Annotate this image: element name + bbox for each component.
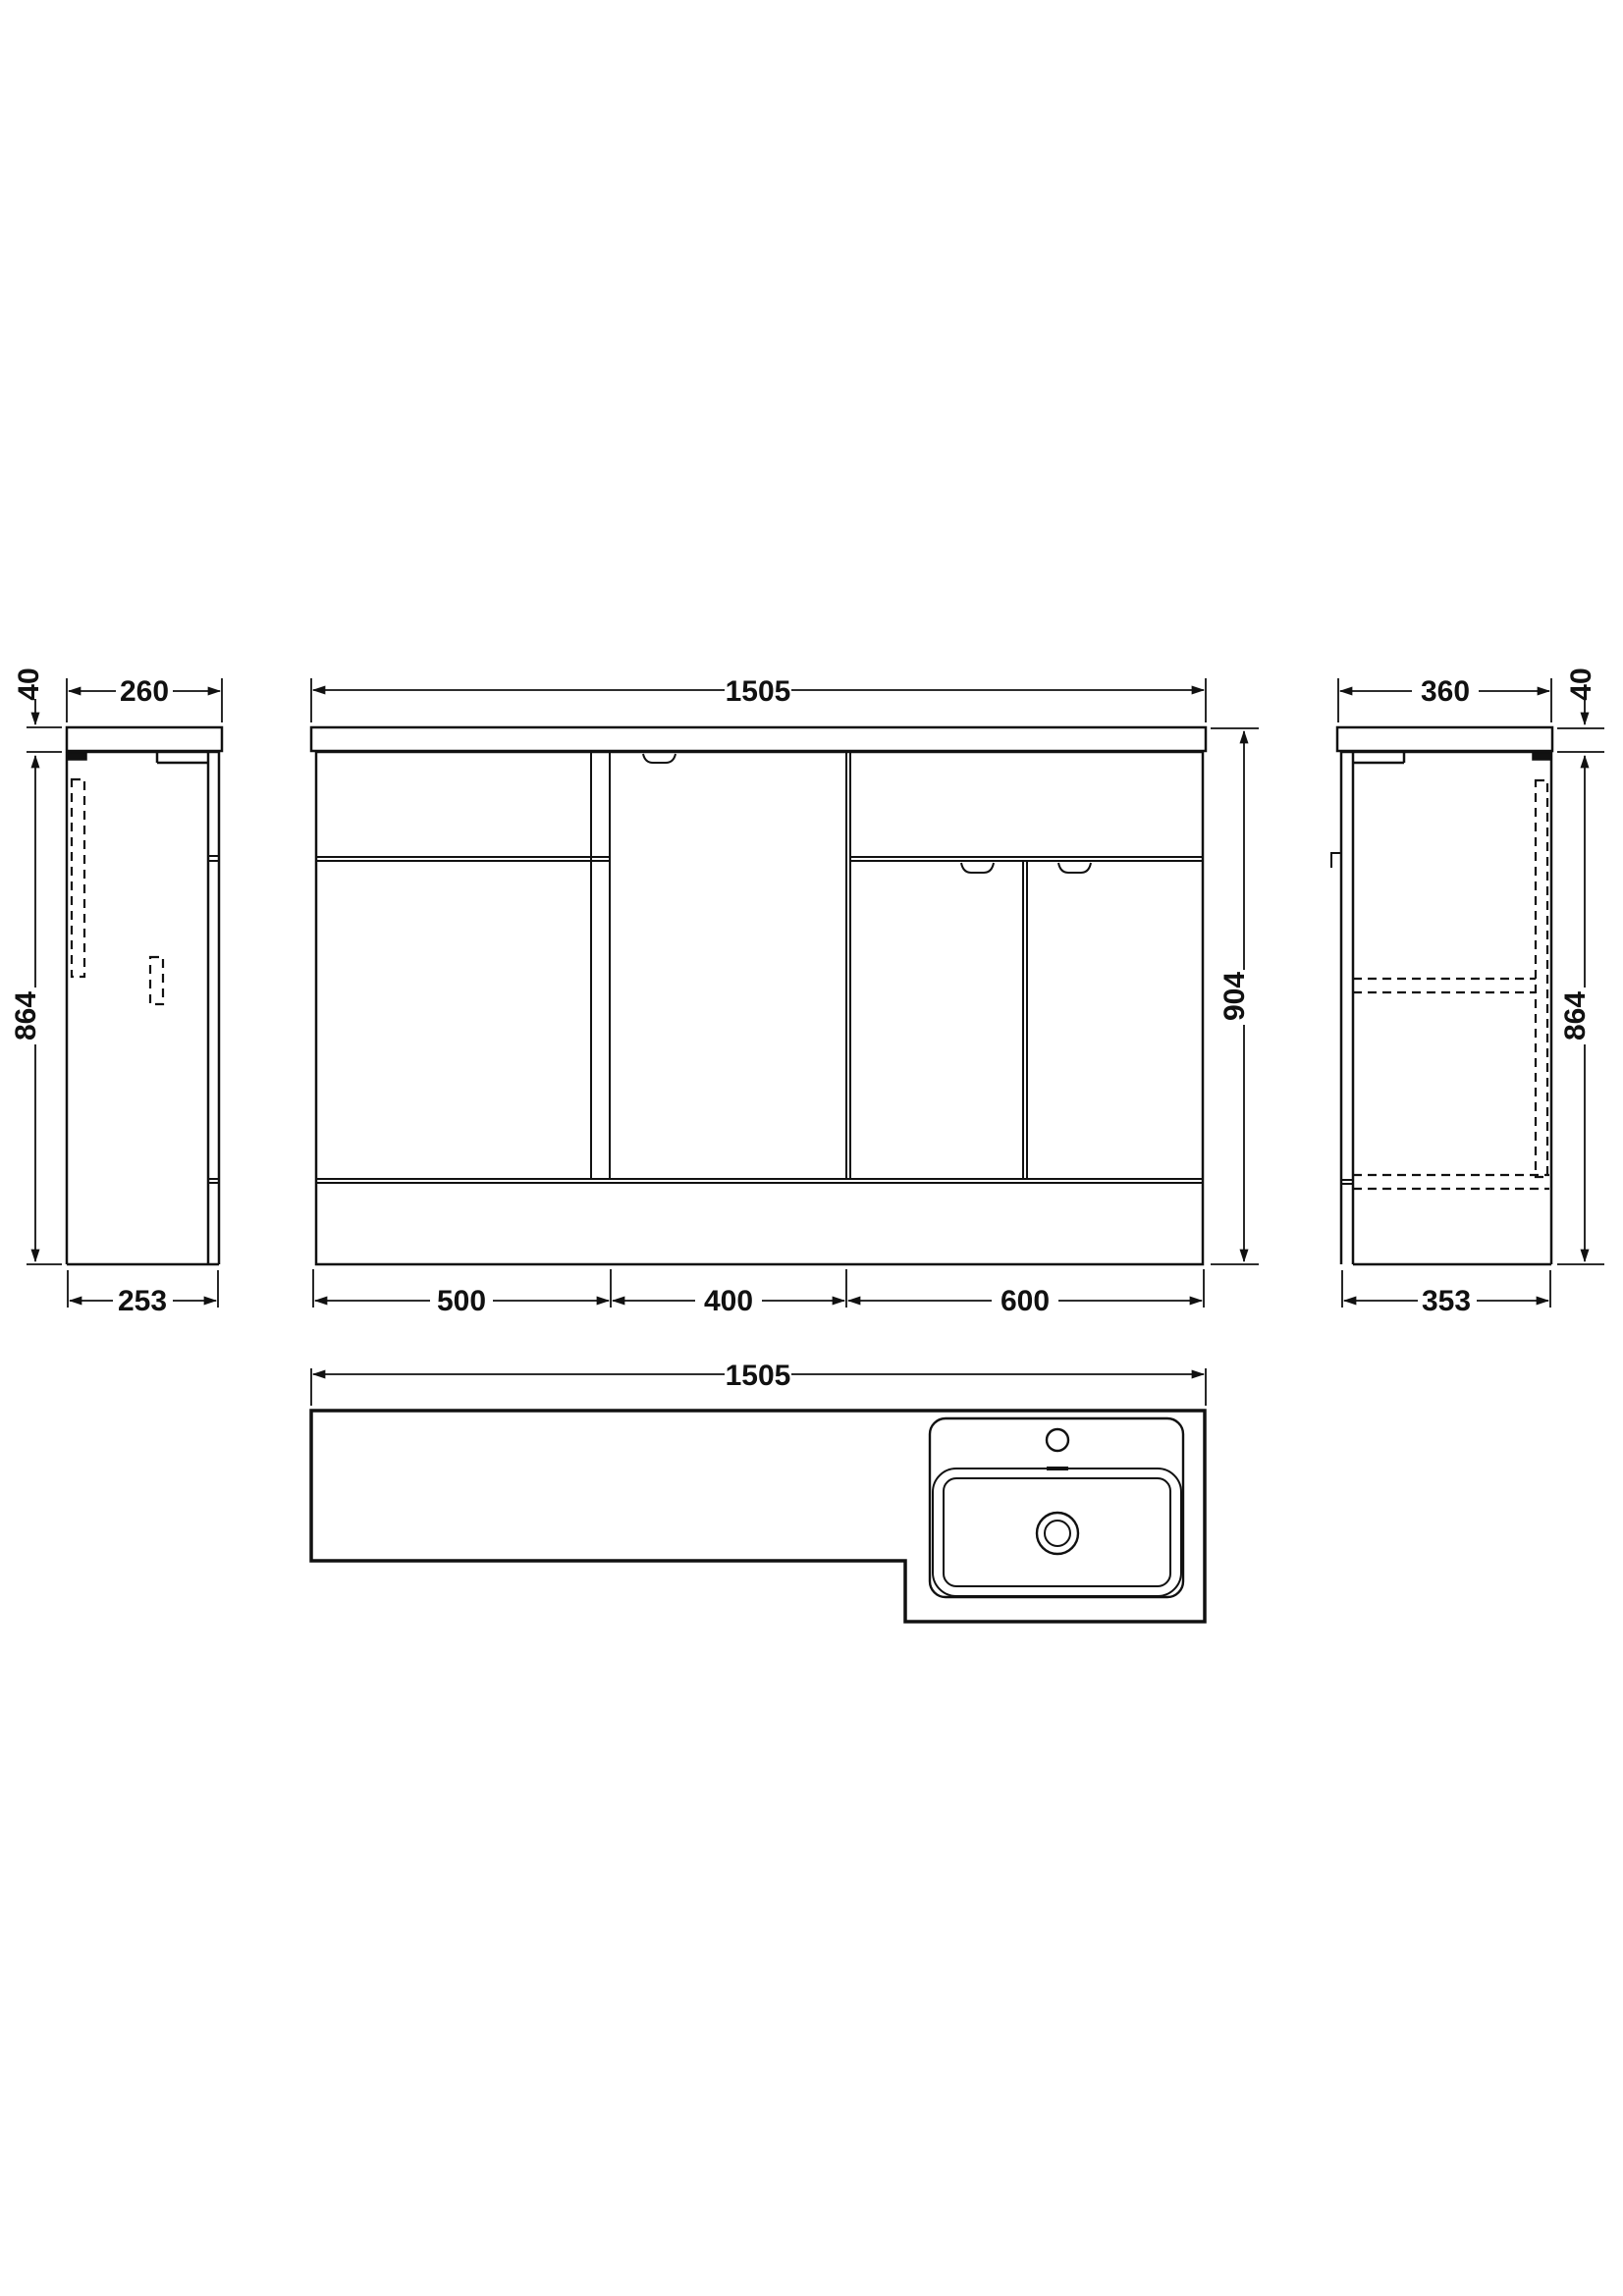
tap-hole: [1047, 1429, 1068, 1451]
overflow-slot: [1047, 1467, 1068, 1470]
dim-label-left-cabinet-depth: 253: [118, 1285, 167, 1317]
drawing-page: 40 260 864 253: [0, 0, 1623, 2296]
front-section-dividers: [591, 752, 1027, 1179]
dim-label-right-countertop-thickness: 40: [1565, 667, 1597, 700]
dim-label-left-cabinet-height: 864: [10, 991, 42, 1041]
hidden-bracket-channel: [72, 779, 84, 977]
basin-bowl-outer: [933, 1468, 1181, 1596]
hidden-bracket-channel: [1536, 780, 1547, 1177]
dim-label-front-section-600: 600: [1001, 1285, 1050, 1317]
left-view-door-gaps: [208, 856, 219, 1183]
handle-notch-wc-door: [643, 754, 676, 763]
left-view-dimensions: [27, 678, 222, 1308]
dim-label-right-countertop-depth: 360: [1421, 675, 1470, 708]
handle-profile-hook: [1331, 853, 1341, 868]
front-countertop: [311, 727, 1206, 751]
plan-view: [311, 1411, 1205, 1622]
dim-label-front-total-width: 1505: [726, 675, 791, 708]
front-elevation-view: [311, 727, 1206, 1264]
dim-label-front-section-500: 500: [437, 1285, 486, 1317]
basin-bowl-inner: [944, 1478, 1170, 1586]
dim-label-plan-total-width: 1505: [726, 1360, 791, 1392]
left-view-countertop: [67, 727, 222, 751]
front-plinth-lines: [316, 1179, 1203, 1183]
hidden-fixing-block: [150, 957, 163, 1004]
front-cabinet-outline: [316, 752, 1203, 1264]
technical-drawing-canvas: 40 260 864 253: [0, 0, 1623, 2296]
basin-outer-edge: [930, 1418, 1183, 1597]
waste-drain-outer: [1037, 1513, 1078, 1554]
dim-label-left-countertop-depth: 260: [120, 675, 169, 708]
front-handle-notches: [643, 754, 1091, 873]
right-view-door-gaps: [1341, 1180, 1353, 1184]
front-band-dividers: [316, 857, 1203, 861]
dim-label-front-total-height: 904: [1218, 972, 1251, 1021]
plan-basin: [930, 1418, 1183, 1597]
handle-notch-left-door: [961, 863, 994, 873]
wall-bracket-clip: [1533, 753, 1551, 760]
wall-bracket-clip: [68, 753, 86, 760]
hidden-shelf-lines: [1353, 979, 1549, 1189]
dim-label-right-cabinet-height: 864: [1559, 991, 1592, 1041]
dim-label-front-section-400: 400: [704, 1285, 753, 1317]
dim-label-left-countertop-thickness: 40: [13, 667, 45, 700]
right-view-countertop: [1337, 727, 1552, 751]
waste-drain-inner: [1045, 1521, 1070, 1546]
dim-label-right-cabinet-depth: 353: [1422, 1285, 1471, 1317]
right-side-view: [1331, 727, 1552, 1264]
handle-notch-right-door: [1058, 863, 1091, 873]
left-side-view: [67, 727, 222, 1264]
front-view-dimensions: [311, 678, 1259, 1308]
